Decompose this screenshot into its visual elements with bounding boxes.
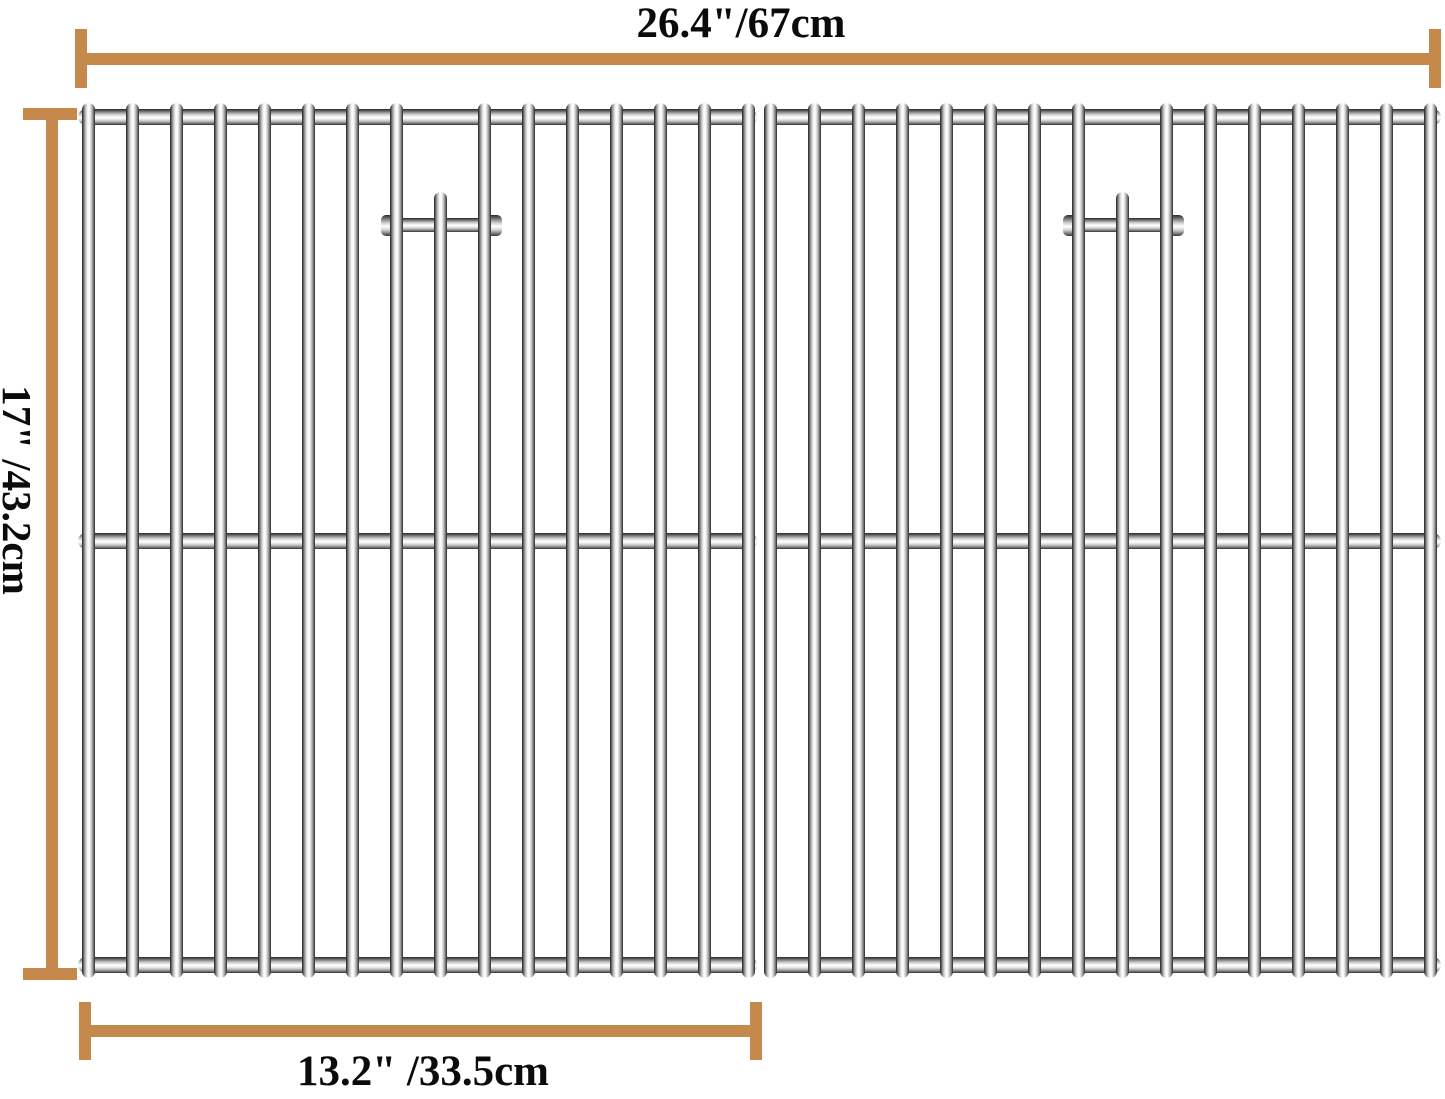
grate-bar xyxy=(1072,103,1085,978)
grate-bar xyxy=(1424,103,1437,978)
grate-bar xyxy=(126,103,139,978)
handle-bar xyxy=(1116,192,1129,978)
grate-bar xyxy=(984,103,997,978)
dimension-line-horizontal xyxy=(75,53,1441,65)
grate-bar xyxy=(1292,103,1305,978)
grate-bar xyxy=(522,103,535,978)
grate-bar xyxy=(390,103,403,978)
grate-bar xyxy=(346,103,359,978)
grate-bar xyxy=(1248,103,1261,978)
grate-bar xyxy=(258,103,271,978)
grill-grates-dimension-diagram: 26.4"/67cm 17" /43.2cm 13.2" /33.5cm xyxy=(0,0,1445,1099)
grate-bar xyxy=(1336,103,1349,978)
grate-bar xyxy=(940,103,953,978)
grate-bar xyxy=(1160,103,1173,978)
dimension-line-horizontal xyxy=(79,1025,762,1037)
grate-bar xyxy=(566,103,579,978)
grate-bar xyxy=(82,103,95,978)
grate-bar xyxy=(1380,103,1393,978)
grate-bar xyxy=(302,103,315,978)
dimension-endcap-right xyxy=(750,1002,762,1060)
grate-bar xyxy=(170,103,183,978)
grate-bar xyxy=(698,103,711,978)
grate-bar xyxy=(1028,103,1041,978)
dimension-height-label: 17" /43.2cm xyxy=(0,340,41,640)
grate-bar xyxy=(742,103,755,978)
handle-bar xyxy=(434,192,447,978)
grate-bar xyxy=(808,103,821,978)
grate-bar xyxy=(896,103,909,978)
grate-bar xyxy=(852,103,865,978)
grate-bar xyxy=(214,103,227,978)
grate-bar xyxy=(478,103,491,978)
grate-bar xyxy=(764,103,777,978)
dimension-line-vertical xyxy=(46,108,58,980)
dimension-total-width-label: 26.4"/67cm xyxy=(441,0,1041,48)
dimension-single-width-label: 13.2" /33.5cm xyxy=(123,1048,723,1096)
grate-bar xyxy=(1204,103,1217,978)
dimension-endcap-right xyxy=(1429,29,1441,88)
grate-bar xyxy=(610,103,623,978)
dimension-endcap-bottom xyxy=(23,968,77,980)
grate-bar xyxy=(654,103,667,978)
